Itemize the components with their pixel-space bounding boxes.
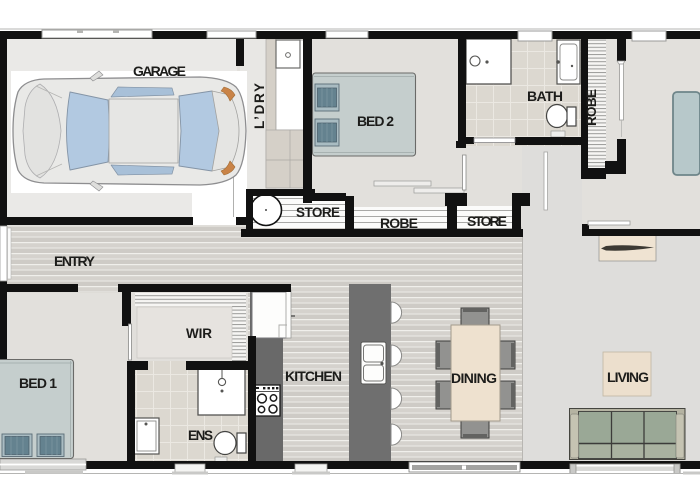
svg-text:BATH: BATH bbox=[527, 88, 563, 104]
svg-text:L’DRY: L’DRY bbox=[252, 83, 267, 129]
svg-text:LIVING: LIVING bbox=[607, 369, 649, 385]
svg-text:ROBE: ROBE bbox=[380, 215, 418, 231]
svg-text:ENTRY: ENTRY bbox=[54, 253, 96, 269]
svg-text:STORE: STORE bbox=[296, 205, 340, 220]
svg-text:ROBE: ROBE bbox=[584, 89, 599, 126]
svg-text:STORE: STORE bbox=[467, 213, 507, 229]
svg-text:ENS: ENS bbox=[188, 428, 213, 443]
svg-text:WIR: WIR bbox=[186, 326, 212, 341]
svg-text:KITCHEN: KITCHEN bbox=[285, 368, 342, 384]
svg-text:DINING: DINING bbox=[451, 370, 497, 386]
svg-text:BED 1: BED 1 bbox=[19, 375, 57, 391]
svg-text:GARAGE: GARAGE bbox=[133, 63, 186, 79]
svg-text:BED 2: BED 2 bbox=[357, 113, 394, 129]
